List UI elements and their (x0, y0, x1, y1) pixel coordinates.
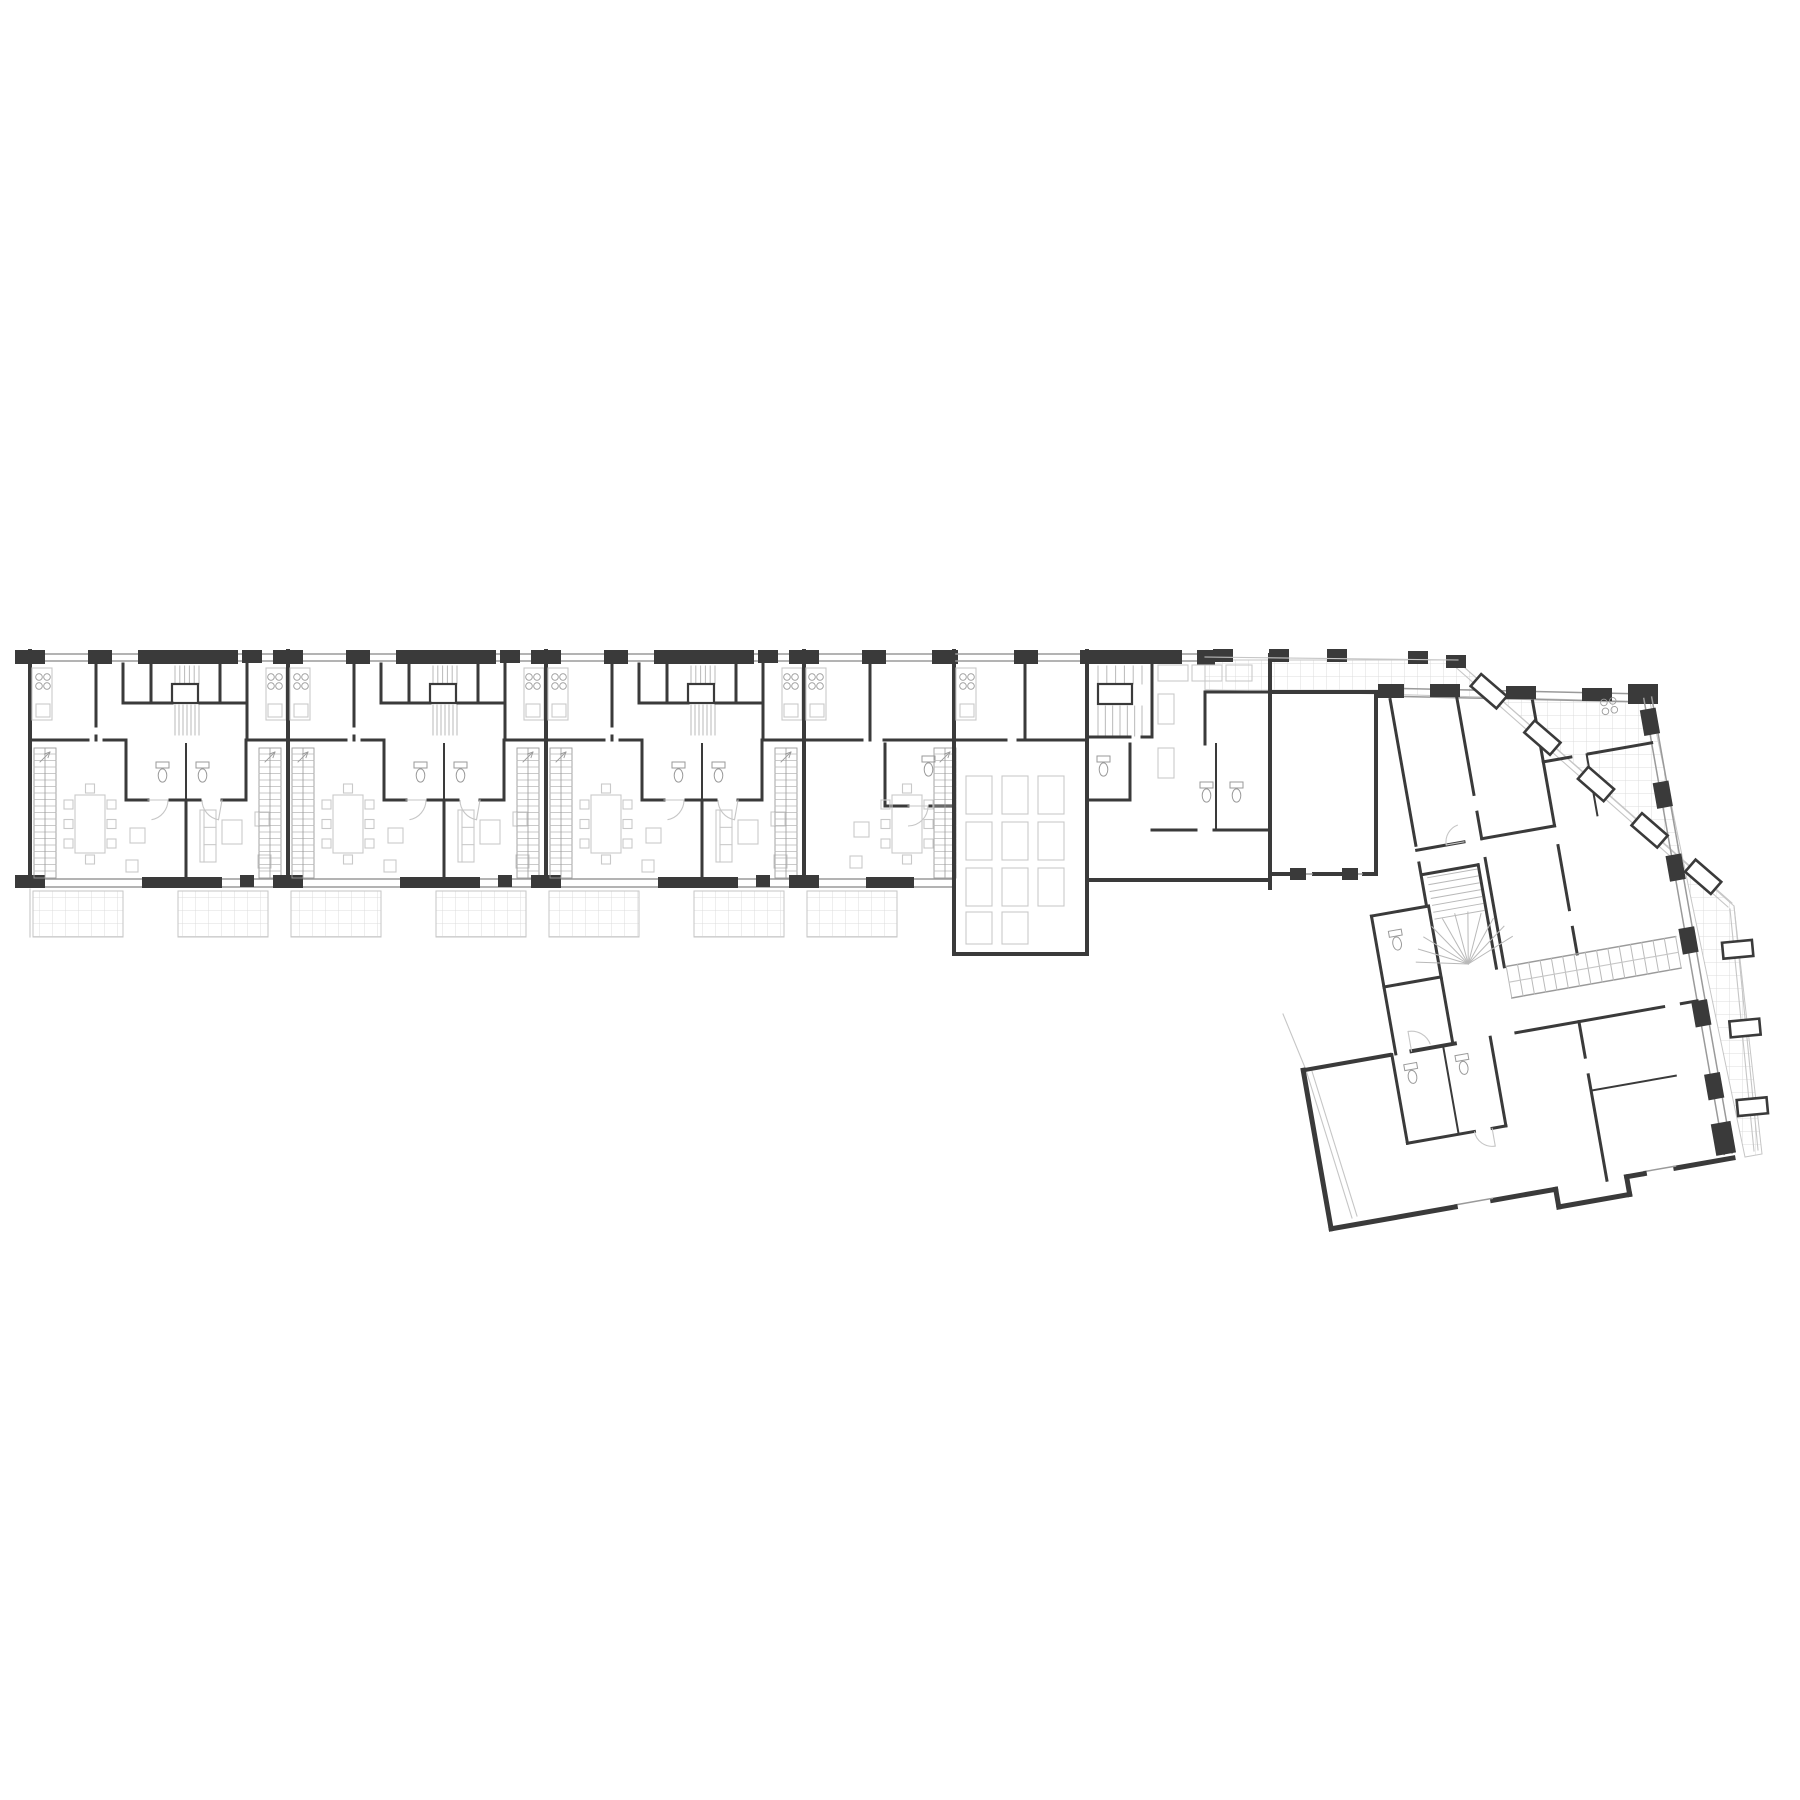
bar-building (15, 650, 1087, 954)
shop-unit (954, 650, 1087, 954)
floor-plan-page (0, 0, 1800, 1800)
head-building-rotated (1242, 654, 1740, 1247)
apartment-unit-1 (15, 650, 286, 937)
apartment-unit-3 (531, 650, 802, 937)
head-building (1242, 654, 1740, 1247)
apartment-unit-end (789, 650, 958, 937)
hall-block (1270, 692, 1376, 880)
apartment-unit-2 (273, 650, 544, 937)
terrace-paving (1205, 660, 1762, 1157)
floor-plan (15, 649, 1768, 1247)
site-lines (30, 889, 1357, 1218)
floor-plan-drawing (0, 0, 1800, 1800)
